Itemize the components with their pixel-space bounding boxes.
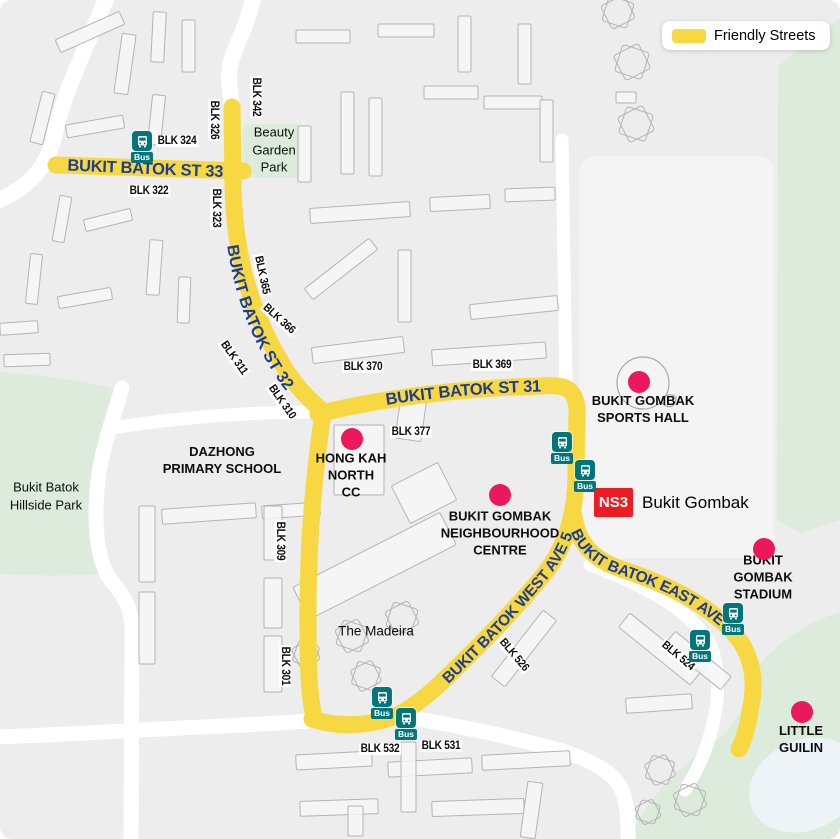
block-label-309: BLK 309 bbox=[274, 520, 286, 562]
building-outline bbox=[300, 799, 378, 817]
place-label-sports-hall: BUKIT GOMBAK SPORTS HALL bbox=[592, 393, 695, 427]
bus-stop-tag: Bus bbox=[689, 651, 711, 662]
building-outline bbox=[182, 20, 195, 72]
legend-label: Friendly Streets bbox=[714, 28, 816, 44]
bus-stop-tag: Bus bbox=[574, 481, 596, 492]
bus-stop: Bus bbox=[131, 131, 153, 163]
bus-stop-tag: Bus bbox=[395, 729, 417, 740]
bus-stop: Bus bbox=[551, 432, 573, 464]
building-outline bbox=[401, 742, 416, 812]
place-label-dazhong-primary: DAZHONG PRIMARY SCHOOL bbox=[163, 444, 281, 478]
building-outline bbox=[424, 86, 478, 99]
bus-icon bbox=[723, 603, 743, 623]
poi-dot-neighbourhood-centre bbox=[489, 484, 511, 506]
block-label-326: BLK 326 bbox=[208, 99, 220, 141]
place-label-the-madeira: The Madeira bbox=[338, 624, 414, 641]
mrt-station-name: Bukit Gombak bbox=[642, 493, 749, 513]
block-label-370: BLK 370 bbox=[342, 361, 384, 373]
bus-stop-tag: Bus bbox=[131, 152, 153, 163]
place-label-neighbourhood-centre: BUKIT GOMBAK NEIGHBOURHOOD CENTRE bbox=[441, 509, 559, 560]
building-outline bbox=[378, 24, 434, 37]
bus-stop-tag: Bus bbox=[722, 624, 744, 635]
building-outline bbox=[430, 194, 491, 211]
place-label-hillside-park: Bukit Batok Hillside Park bbox=[10, 478, 82, 513]
right-green-strip bbox=[777, 18, 840, 533]
friendly-street-swatch-icon bbox=[672, 29, 706, 43]
block-label-323: BLK 323 bbox=[210, 187, 222, 229]
block-label-377: BLK 377 bbox=[390, 426, 432, 438]
bus-icon bbox=[396, 708, 416, 728]
building-outline bbox=[369, 98, 382, 176]
block-label-301: BLK 301 bbox=[279, 645, 291, 687]
mrt-line-badge: NS3 bbox=[594, 488, 633, 517]
building-outline bbox=[484, 96, 542, 109]
bus-stop: Bus bbox=[395, 708, 417, 740]
block-label-324: BLK 324 bbox=[156, 135, 198, 147]
building-outline bbox=[616, 92, 636, 103]
building-outline bbox=[177, 277, 191, 323]
building-outline bbox=[298, 126, 311, 182]
bus-stop: Bus bbox=[722, 603, 744, 635]
building-outline bbox=[341, 92, 354, 174]
building-outline bbox=[4, 353, 50, 367]
legend: Friendly Streets bbox=[662, 21, 830, 50]
building-outline bbox=[139, 592, 155, 664]
place-label-hong-kah-north-cc: HONG KAH NORTH CC bbox=[316, 451, 387, 502]
block-label-342: BLK 342 bbox=[250, 76, 262, 118]
building-outline bbox=[398, 250, 411, 322]
building-outline bbox=[296, 30, 350, 43]
bus-stop-tag: Bus bbox=[371, 708, 393, 719]
poi-dot-stadium bbox=[753, 538, 775, 560]
bus-icon bbox=[575, 460, 595, 480]
place-label-stadium: BUKIT GOMBAK STADIUM bbox=[725, 553, 802, 604]
bus-stop: Bus bbox=[689, 630, 711, 662]
building-outline bbox=[505, 187, 555, 202]
bus-stop: Bus bbox=[371, 687, 393, 719]
building-outline bbox=[264, 578, 282, 628]
building-outline bbox=[458, 16, 471, 72]
building-outline bbox=[151, 12, 167, 63]
poi-dot-little-guilin bbox=[791, 701, 813, 723]
block-label-322: BLK 322 bbox=[128, 185, 170, 197]
bus-icon bbox=[690, 630, 710, 650]
bus-icon bbox=[372, 687, 392, 707]
bus-stop-tag: Bus bbox=[551, 453, 573, 464]
building-outline bbox=[518, 24, 531, 84]
building-outline bbox=[348, 806, 363, 836]
place-label-beauty-garden-park: Beauty Garden Park bbox=[252, 124, 295, 177]
place-label-little-guilin: LITTLE GUILIN bbox=[779, 723, 823, 757]
mrt-station: NS3 Bukit Gombak bbox=[594, 488, 749, 517]
map-canvas: BUKIT BATOK ST 33 BUKIT BATOK ST 32 BUKI… bbox=[0, 0, 840, 839]
building-outline bbox=[0, 321, 38, 336]
friendly-streets-map: BUKIT BATOK ST 33 BUKIT BATOK ST 32 BUKI… bbox=[0, 0, 840, 839]
block-label-531: BLK 531 bbox=[420, 740, 462, 752]
building-outline bbox=[139, 506, 155, 582]
bus-icon bbox=[552, 432, 572, 452]
poi-dot-sports-hall bbox=[628, 371, 650, 393]
poi-dot-hong-kah-north-cc bbox=[341, 428, 363, 450]
bus-stop: Bus bbox=[574, 460, 596, 492]
building-outline bbox=[432, 798, 524, 816]
building-outline bbox=[540, 100, 553, 162]
bus-icon bbox=[132, 131, 152, 151]
block-label-532: BLK 532 bbox=[359, 743, 401, 755]
block-label-369: BLK 369 bbox=[471, 359, 513, 371]
